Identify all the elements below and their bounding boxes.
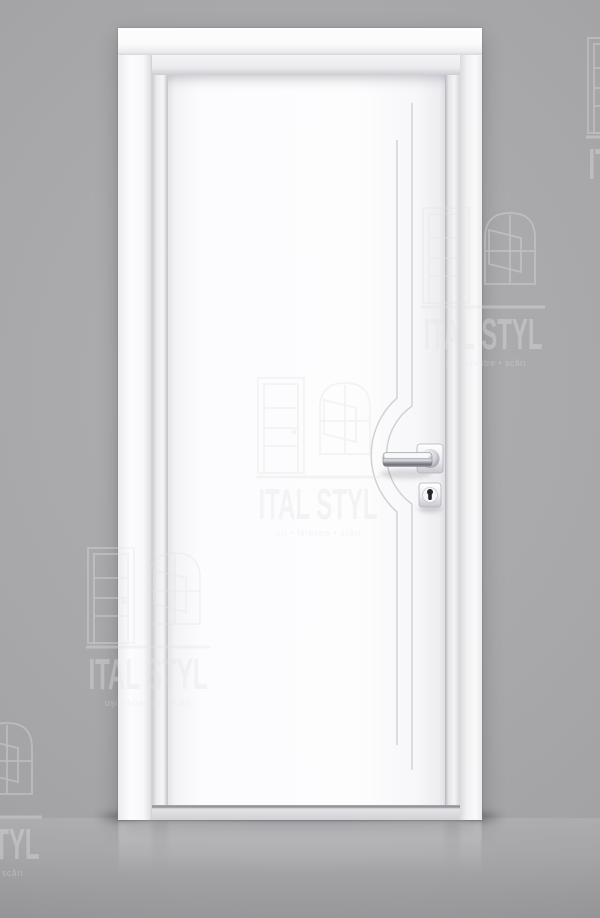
door-jamb-right	[445, 75, 460, 820]
door-assembly	[118, 28, 482, 820]
brand-logo	[586, 36, 600, 140]
floor-reflection	[118, 821, 482, 881]
door-jamb-top	[152, 55, 460, 75]
keyhole	[419, 483, 441, 507]
door-handle	[383, 444, 443, 473]
brand-name: ITAL STYL	[588, 144, 600, 188]
door-leaf	[168, 75, 445, 805]
door-casing-right	[460, 55, 482, 820]
watermark-partial: ITAL STYL uși • ferestre • scări	[573, 36, 600, 198]
door-bottom-gap	[152, 805, 460, 820]
window-icon	[485, 213, 535, 284]
brand-tagline: uși • ferestre • scări	[577, 188, 600, 198]
window-icon	[0, 723, 32, 794]
product-photo-scene: ITAL STYL uși • ferestre • scări ITAL ST…	[0, 0, 600, 918]
door-icon	[588, 38, 600, 133]
door-jamb-left	[152, 75, 168, 820]
door-casing-left	[118, 55, 152, 820]
door-leaf-details	[168, 75, 445, 805]
door-casing-top	[118, 28, 482, 55]
groove-design	[371, 103, 412, 770]
brand-logo	[0, 716, 42, 820]
